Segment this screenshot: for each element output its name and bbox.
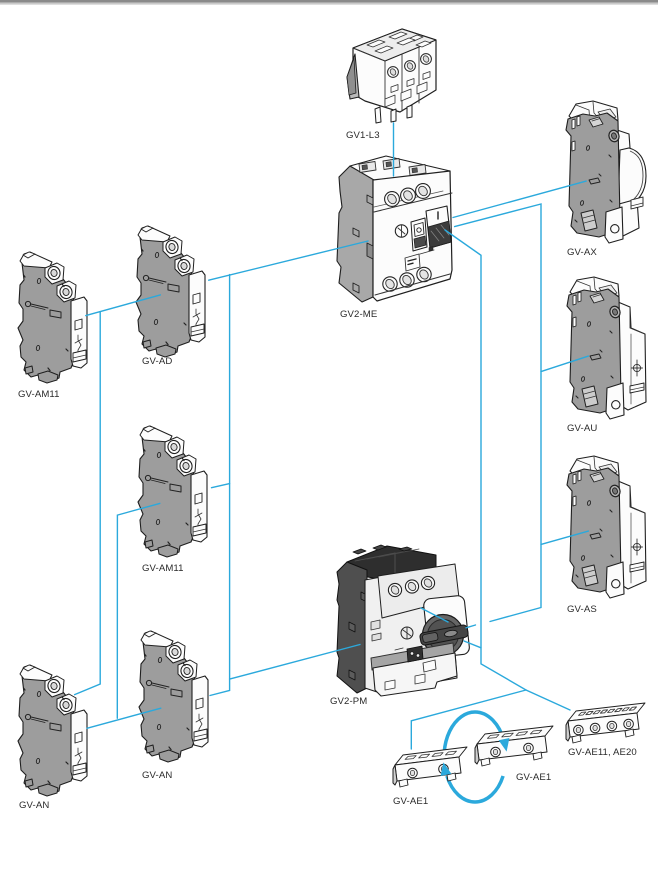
svg-text:GV-AE1: GV-AE1 <box>393 796 428 807</box>
svg-text:GV-AD: GV-AD <box>142 356 172 367</box>
svg-text:GV-AU: GV-AU <box>567 423 597 434</box>
svg-text:GV-AE1: GV-AE1 <box>516 772 551 783</box>
svg-text:GV-AN: GV-AN <box>142 770 172 781</box>
svg-text:GV-AS: GV-AS <box>567 604 597 615</box>
svg-text:GV-AM11: GV-AM11 <box>142 563 184 574</box>
svg-text:GV-AE11, AE20: GV-AE11, AE20 <box>568 747 637 758</box>
svg-text:GV-AM11: GV-AM11 <box>18 389 60 400</box>
svg-text:GV-AN: GV-AN <box>19 800 49 811</box>
svg-text:GV2-ME: GV2-ME <box>340 309 377 320</box>
svg-text:GV-AX: GV-AX <box>567 247 597 258</box>
svg-text:GV2-PM: GV2-PM <box>330 696 367 707</box>
svg-text:GV1-L3: GV1-L3 <box>346 130 380 141</box>
